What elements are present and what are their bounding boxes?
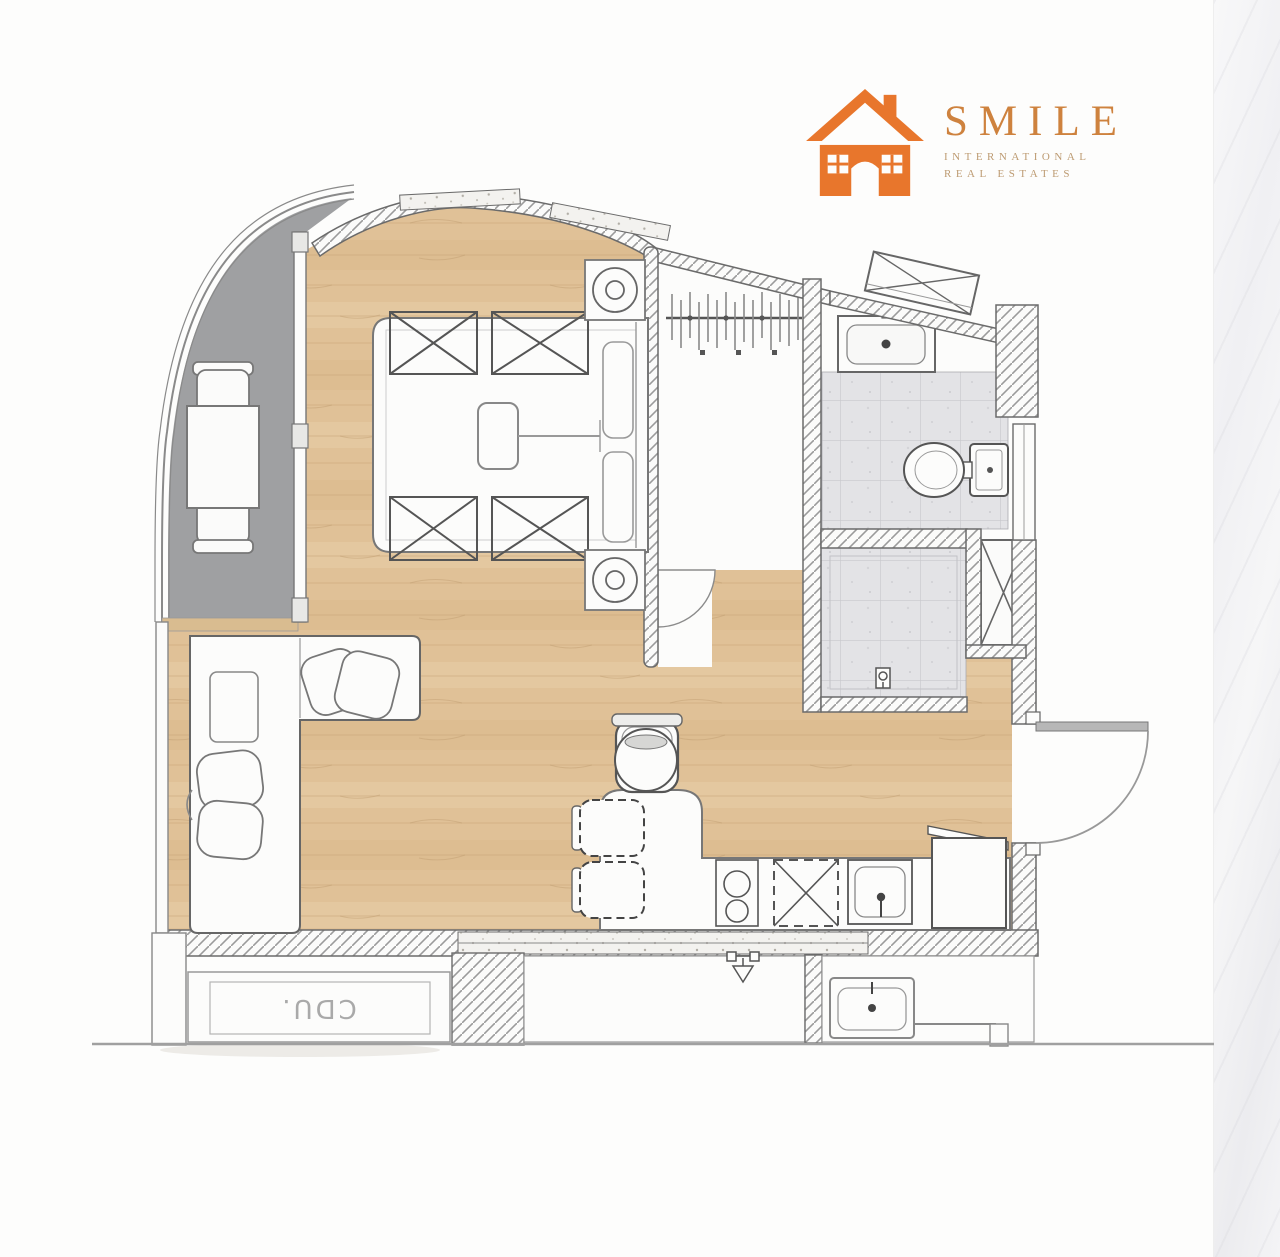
floor-drain: [876, 668, 890, 688]
closet-right-wall: [803, 279, 821, 712]
ledge-divider-wall: [805, 955, 822, 1043]
ledge-middle-bay: [524, 956, 805, 1042]
cooktop: [716, 860, 758, 926]
ledge-left-strip: [152, 933, 186, 1045]
door-swing: [1036, 731, 1148, 843]
balcony-table: [187, 406, 259, 508]
shower: [821, 548, 966, 697]
nightstand-top: [585, 260, 645, 320]
balcony-sill: [162, 618, 298, 631]
shower-top-wall: [821, 529, 967, 548]
floor-plan: CDU.: [0, 0, 1280, 1257]
right-wall-upper: [1012, 540, 1036, 724]
condenser-label: CDU.: [279, 993, 356, 1023]
shower-right-wall: [966, 529, 981, 658]
kitchen-sink: [848, 860, 912, 924]
door-leaf: [1036, 722, 1148, 731]
top-right-column: [996, 305, 1038, 417]
living-left-wall: [156, 622, 168, 933]
right-wall-lower: [1012, 843, 1036, 933]
shaft-side-floor: [966, 658, 1012, 700]
shaft-bottom-wall: [966, 645, 1026, 658]
entry-door: [1026, 712, 1148, 855]
page-background: SMILE INTERNATIONAL REAL ESTATES: [0, 0, 1280, 1257]
toilet: [904, 443, 1008, 497]
dining-chair-1: [572, 800, 644, 856]
dining-chair-2: [572, 862, 644, 918]
fridge: [928, 826, 1008, 928]
shower-bottom-wall: [821, 697, 967, 712]
shower-tile-floor: [821, 548, 966, 697]
nightstand-bottom: [585, 550, 645, 610]
sliding-door: [292, 232, 308, 622]
condenser-ledge: CDU.: [188, 972, 450, 1042]
ledge-hatch-block: [452, 953, 524, 1045]
appliance-space: [774, 860, 838, 926]
sofa-pillow: [210, 672, 258, 742]
bed-center-tray: [478, 403, 518, 469]
